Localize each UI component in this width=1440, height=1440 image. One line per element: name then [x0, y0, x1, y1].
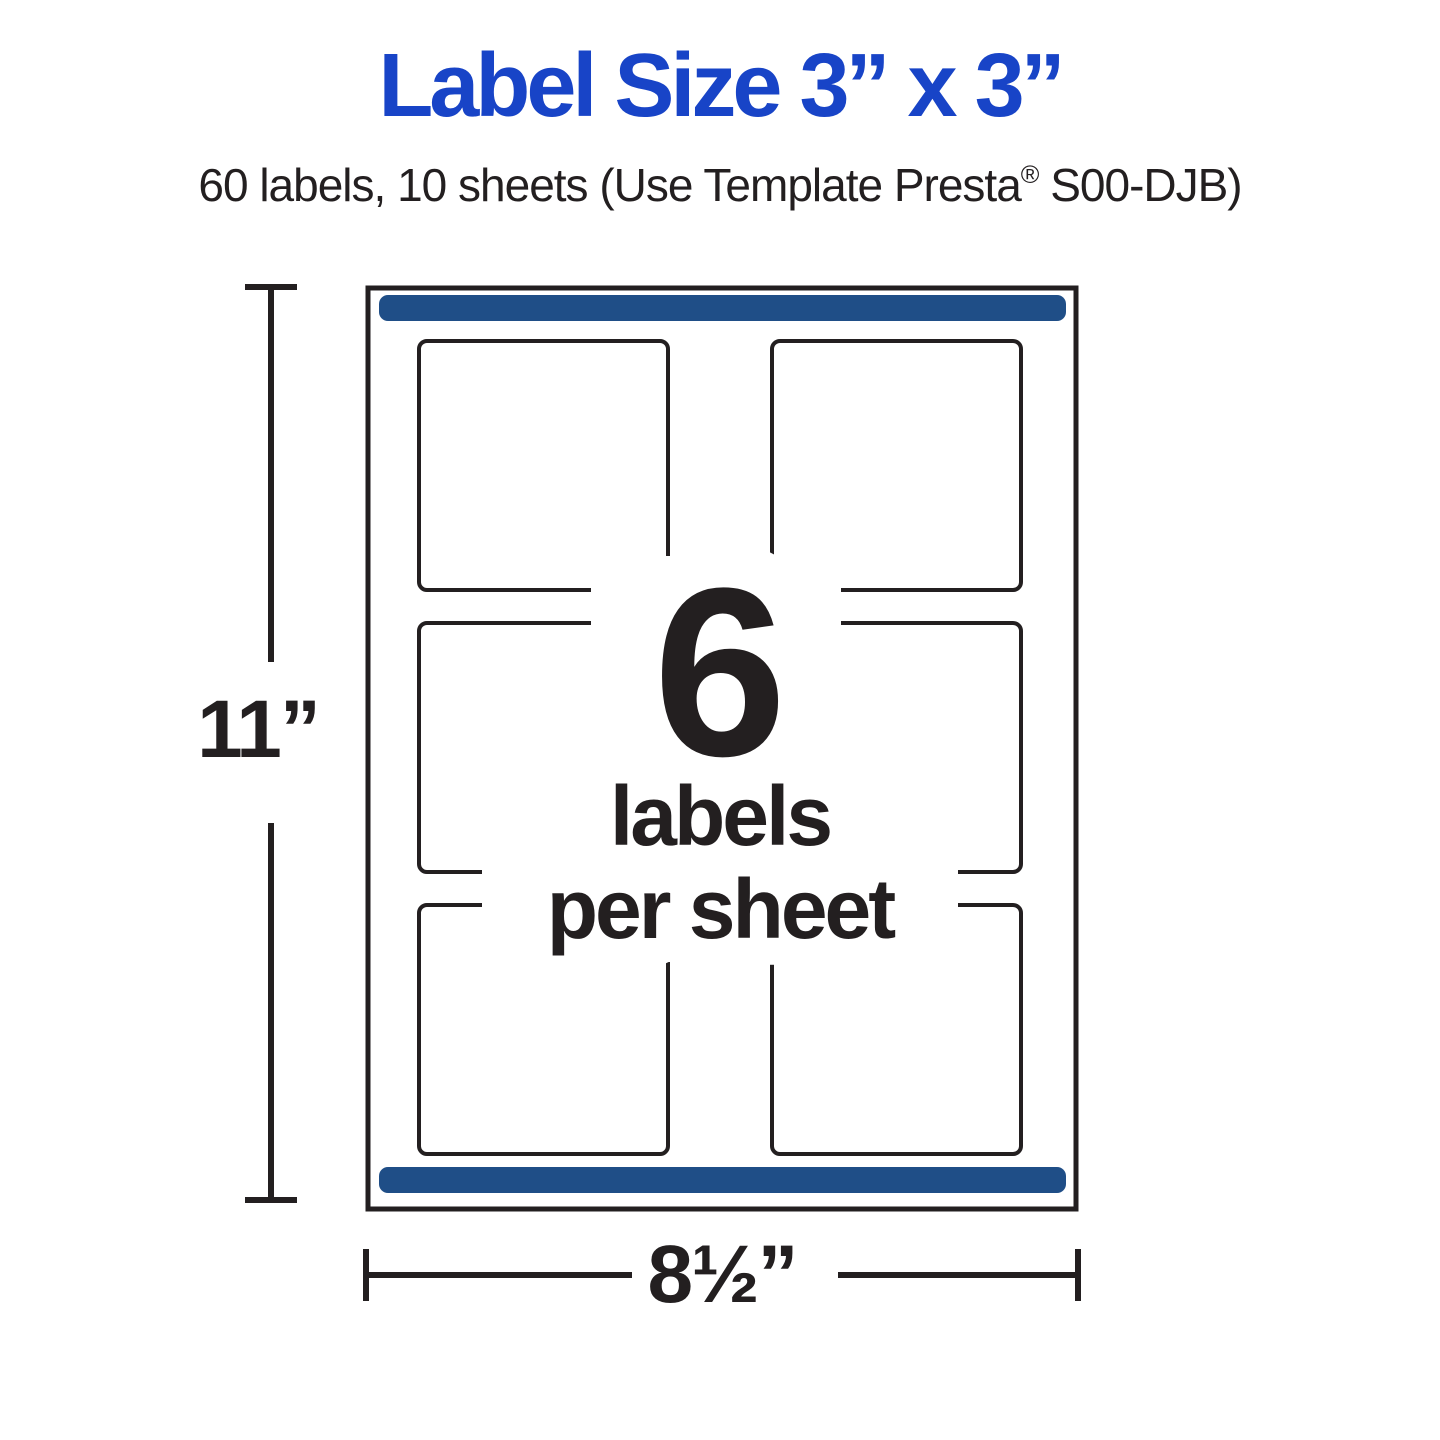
label-cell	[772, 341, 1021, 590]
sheet-top-bar	[379, 295, 1066, 321]
label-cell	[419, 341, 668, 590]
labels-caption-line2: per sheet	[547, 862, 896, 956]
width-dimension-label: 8½”	[648, 1229, 797, 1320]
labels-caption-line1: labels	[610, 769, 830, 863]
labels-per-sheet-count: 6	[653, 538, 786, 806]
label-product-diagram: Label Size 3” x 3” 60 labels, 10 sheets …	[0, 0, 1440, 1440]
height-dimension-label: 11”	[197, 684, 319, 775]
sheet-bottom-bar	[379, 1167, 1066, 1193]
sheet-diagram: 6 labels per sheet 11” 8½”	[0, 0, 1440, 1440]
